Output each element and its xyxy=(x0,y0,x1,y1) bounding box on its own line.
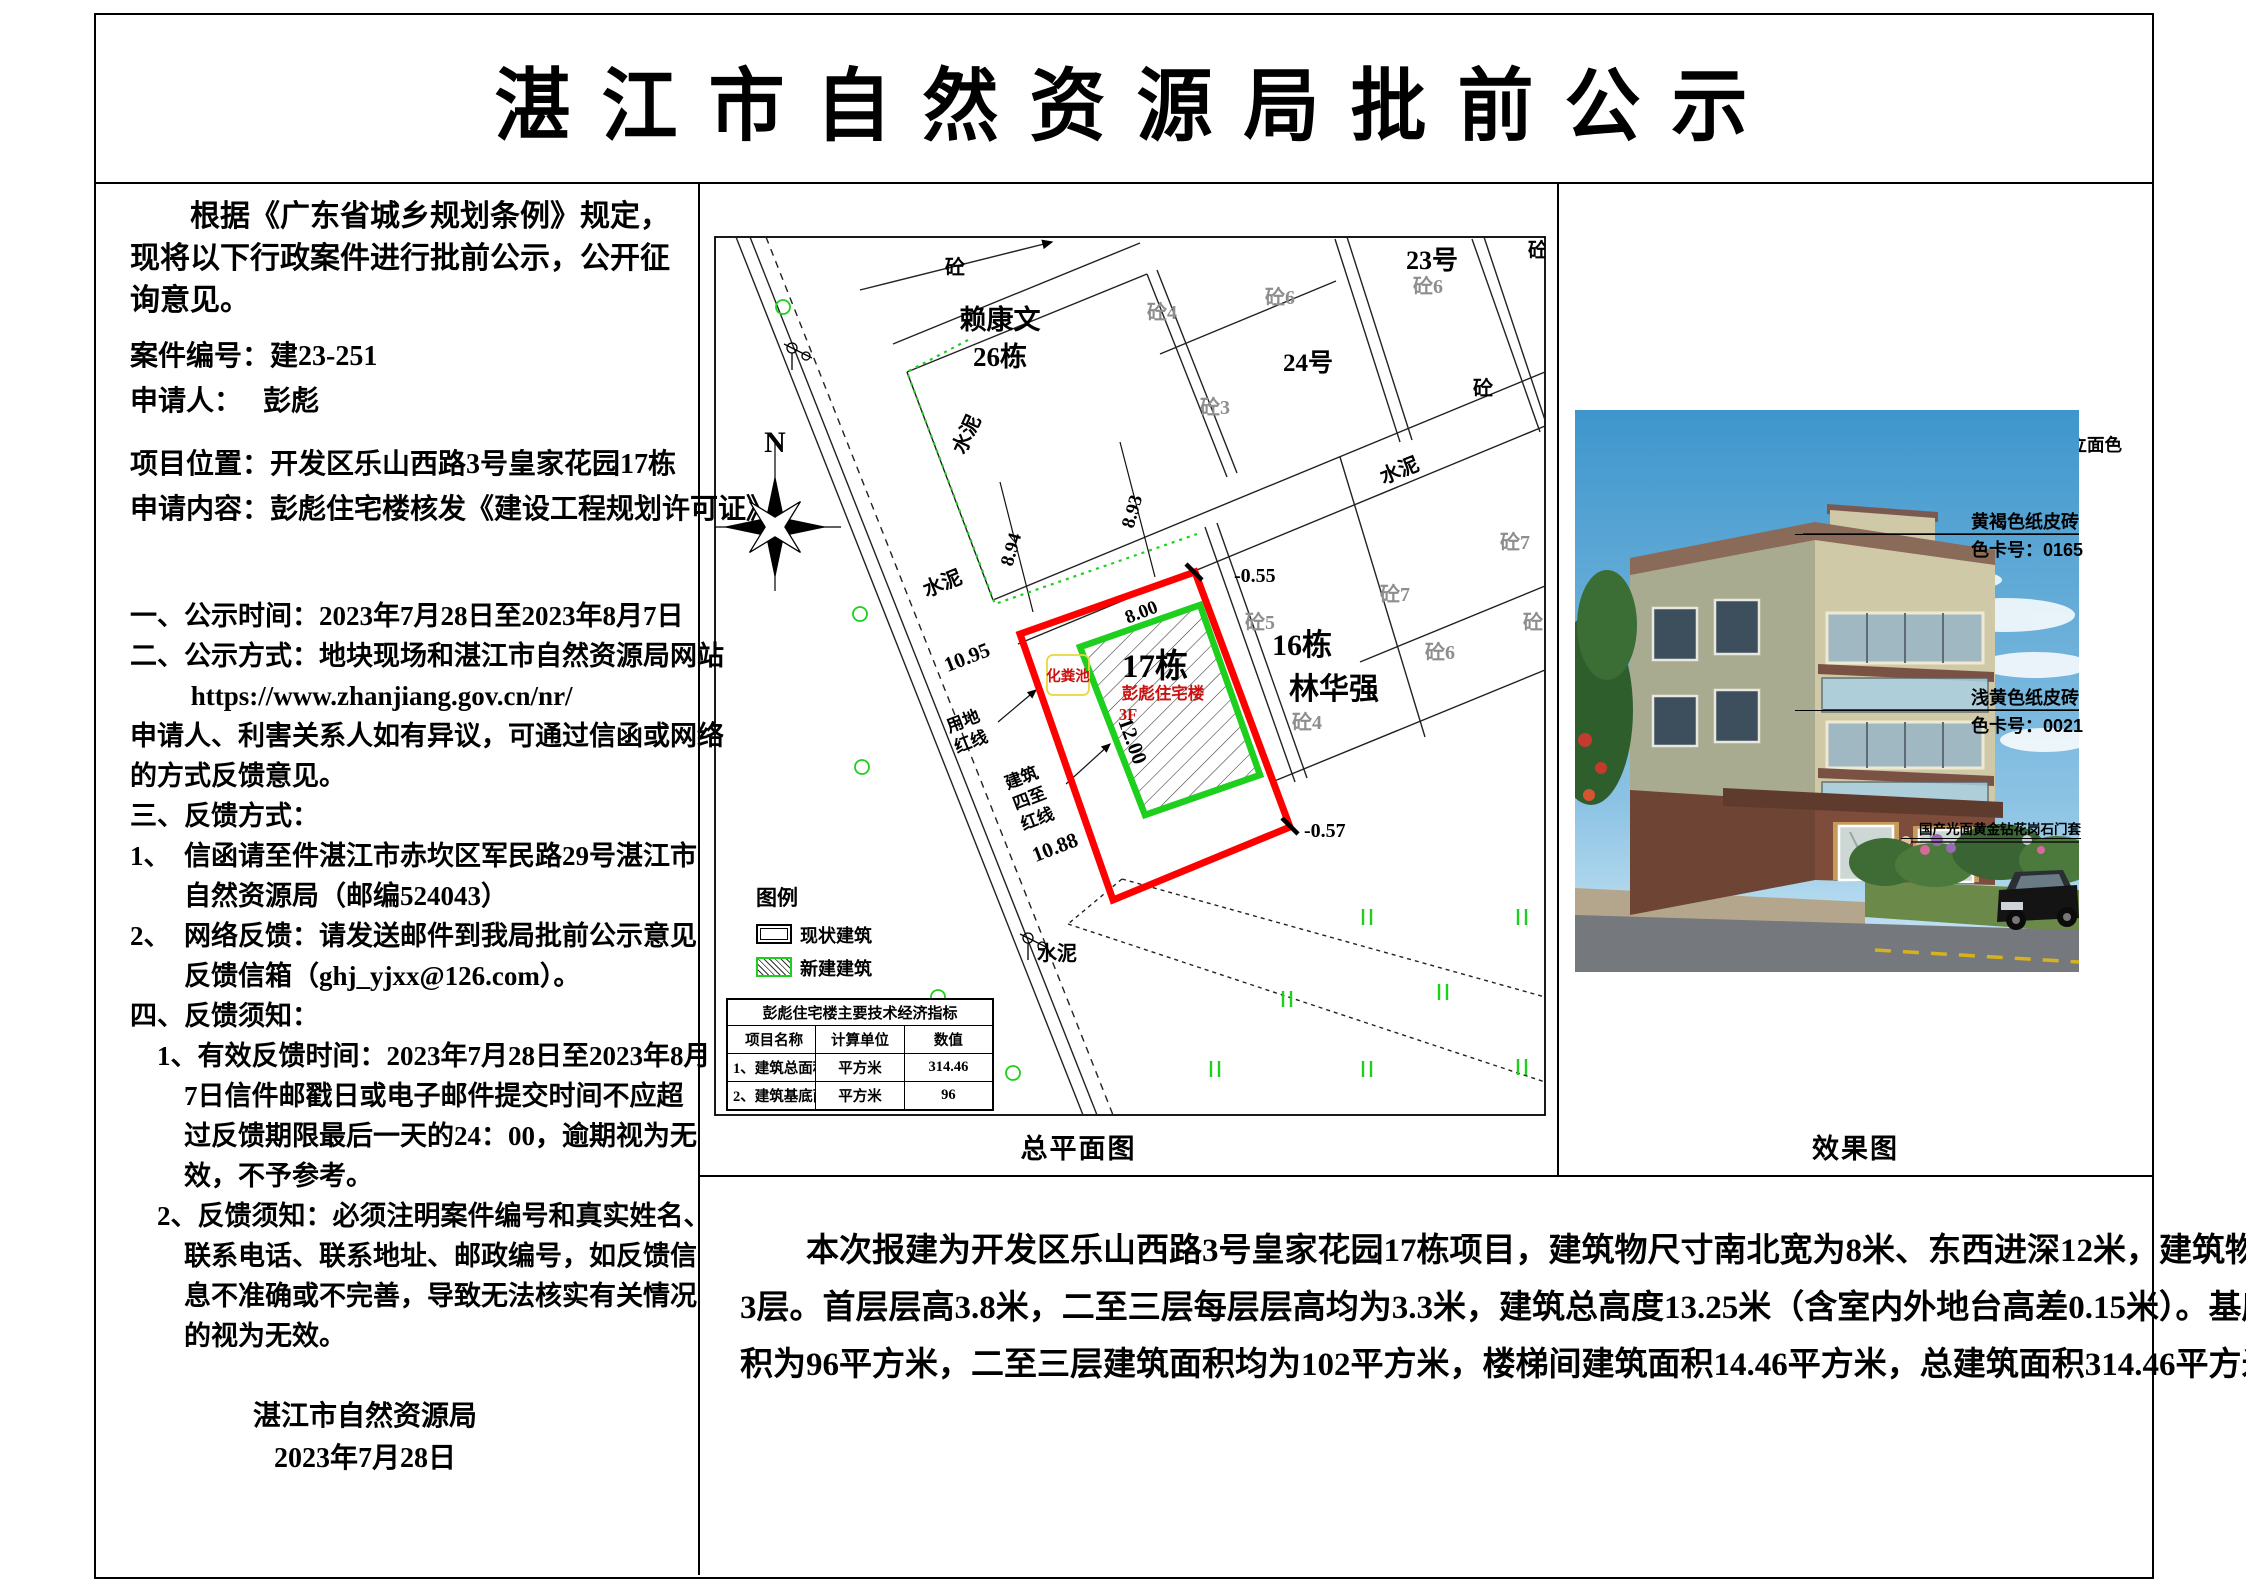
legend-existing-label: 现状建筑 xyxy=(800,922,872,948)
website-url: https://www.zhanjiang.gov.cn/nr/ xyxy=(130,676,698,716)
building-number-label: 16栋 xyxy=(1272,628,1332,662)
applicant: 申请人： 彭彪 xyxy=(130,379,698,424)
row-value: 96 xyxy=(904,1082,993,1111)
notice-line: 联系电话、联系地址、邮政编号，如反馈信 xyxy=(130,1236,698,1276)
notice-line: 7日信件邮戳日或电子邮件提交时间不应超 xyxy=(130,1076,698,1116)
site-plan-caption: 总平面图 xyxy=(600,1127,1557,1166)
svg-text:砼4: 砼4 xyxy=(1147,300,1177,324)
green-boundary-dashes xyxy=(907,340,1197,604)
owner-label: 林华强 xyxy=(1289,673,1379,706)
render-caption: 效果图 xyxy=(1559,1127,2152,1166)
septic-tank-label: 化粪池 xyxy=(1046,667,1090,685)
indicators-table: 彭彪住宅楼主要技术经济指标 项目名称 计算单位 数值 1、建筑总面积 平方米 3… xyxy=(726,998,994,1111)
house-number-label: 24号 xyxy=(1283,349,1333,377)
utility-pole-icon xyxy=(784,343,812,370)
notice-line: 2、反馈须知：必须注明案件编号和真实姓名、 xyxy=(130,1196,698,1236)
notice-line: 四、反馈须知： xyxy=(130,996,698,1036)
col-header: 计算单位 xyxy=(816,1026,905,1054)
page-title: 湛 江 市 自 然 资 源 局 批 前 公 示 xyxy=(495,41,1754,157)
new-building-outline xyxy=(1080,605,1260,815)
email-line: 反馈信箱（ghj_yjxx@126.com）。 xyxy=(130,956,698,996)
material-annotation-1: 黄褐色纸皮砖 xyxy=(1795,508,2079,535)
svg-text:砼7: 砼7 xyxy=(1380,582,1410,606)
material-annotation-2: 浅黄色纸皮砖 xyxy=(1795,684,2079,711)
render-panel: 采用《中国建筑色卡国家标准》（GB/T18922-2008）色卡编号立面色号： xyxy=(1559,182,2152,1177)
owner-label: 赖康文 xyxy=(960,304,1042,335)
legend-new-label: 新建建筑 xyxy=(800,955,872,981)
legend-new-swatch xyxy=(756,957,792,977)
color-card-1: 色卡号：0165 xyxy=(1971,536,2083,562)
intro-line: 根据《广东省城乡规划条例》规定， xyxy=(130,196,698,238)
dim-1088: 10.88 xyxy=(1029,828,1082,867)
issuing-authority: 湛江市自然资源局 xyxy=(130,1396,600,1438)
notice-line: 二、公示方式：地块现场和湛江市自然资源局网站 xyxy=(130,636,698,676)
intro-line: 询意见。 xyxy=(130,280,698,322)
notice-line: 一、公示时间：2023年7月28日至2023年8月7日 xyxy=(130,596,698,636)
title-block: 湛 江 市 自 然 资 源 局 批 前 公 示 xyxy=(96,15,2152,184)
notice-line: 1、有效反馈时间：2023年7月28日至2023年8月 xyxy=(130,1036,698,1076)
row-label: 1、建筑总面积 xyxy=(727,1054,816,1082)
project-house-label: 彭彪住宅楼 xyxy=(1122,683,1205,703)
notice-line: 三、反馈方式： xyxy=(130,796,698,836)
svg-text:砼3: 砼3 xyxy=(1200,395,1230,419)
dim-893: 8.93 xyxy=(1118,493,1147,531)
building-17-label: 17栋 xyxy=(1122,648,1188,685)
notice-text-column: 根据《广东省城乡规划条例》规定， 现将以下行政案件进行批前公示，公开征 询意见。… xyxy=(96,182,700,1575)
north-compass-icon xyxy=(713,439,841,591)
svg-text:砼6: 砼6 xyxy=(1265,285,1295,309)
road-surface-label: 水泥 xyxy=(948,411,986,457)
description-line: 3层。首层层高3.8米，二至三层每层层高均为3.3米，建筑总高度13.25米（含… xyxy=(740,1280,2114,1337)
notice-line: 自然资源局（邮编524043） xyxy=(130,876,698,916)
house-number-label: 23号 xyxy=(1406,246,1458,275)
elev-057: -0.57 xyxy=(1304,820,1346,842)
project-location: 项目位置：开发区乐山西路3号皇家花园17栋 xyxy=(130,442,698,487)
col-header: 数值 xyxy=(904,1026,993,1054)
legend-existing-swatch xyxy=(756,924,792,944)
elev-055: -0.55 xyxy=(1234,565,1276,587)
row-unit: 平方米 xyxy=(816,1054,905,1082)
notice-line: 1、 信函请至件湛江市赤坎区军民路29号湛江市 xyxy=(130,836,698,876)
grass-marks xyxy=(1211,909,1526,1077)
svg-text:砼5: 砼5 xyxy=(1245,610,1275,634)
description-line: 积为96平方米，二至三层建筑面积均为102平方米，楼梯间建筑面积14.46平方米… xyxy=(740,1337,2114,1394)
dim-1095: 10.95 xyxy=(941,638,994,677)
table-row: 1、建筑总面积 平方米 314.46 xyxy=(727,1054,993,1082)
issue-date: 2023年7月28日 xyxy=(130,1438,600,1480)
notice-page: 湛 江 市 自 然 资 源 局 批 前 公 示 根据《广东省城乡规划条例》规定，… xyxy=(94,13,2154,1579)
legend-title: 图例 xyxy=(756,882,798,912)
land-red-line-label: 用地 红线 xyxy=(944,706,991,757)
row-value: 314.46 xyxy=(904,1054,993,1082)
door-frame-annotation: 国产光面黄金钻花岗石门套 xyxy=(1901,818,2081,839)
application-content: 申请内容：彭彪住宅楼核发《建设工程规划许可证》 xyxy=(130,487,698,532)
description-line: 本次报建为开发区乐山西路3号皇家花园17栋项目，建筑物尺寸南北宽为8米、东西进深… xyxy=(740,1223,2114,1280)
north-letter: N xyxy=(764,426,786,459)
dim-894: 8.94 xyxy=(997,530,1026,568)
svg-text:砼6: 砼6 xyxy=(1413,274,1443,298)
project-description-panel: 本次报建为开发区乐山西路3号皇家花园17栋项目，建筑物尺寸南北宽为8米、东西进深… xyxy=(700,1177,2152,1577)
case-number: 案件编号：建23-251 xyxy=(130,334,698,379)
road-surface-label: 水泥 xyxy=(920,565,966,601)
row-label: 2、建筑基底面积 xyxy=(727,1082,816,1111)
structure-label: 砼 xyxy=(945,255,966,279)
notice-line: 的方式反馈意见。 xyxy=(130,756,698,796)
row-unit: 平方米 xyxy=(816,1082,905,1111)
road-surface-label: 水泥 xyxy=(1377,452,1423,488)
road-surface-label: 水泥 xyxy=(1037,942,1077,965)
col-header: 项目名称 xyxy=(727,1026,816,1054)
color-card-2: 色卡号：0021 xyxy=(1971,712,2083,738)
building-red-line-label: 建筑 四至 红线 xyxy=(1002,762,1057,834)
svg-text:砼4: 砼4 xyxy=(1292,710,1322,734)
svg-text:砼6: 砼6 xyxy=(1425,640,1455,664)
notice-line: 申请人、利害关系人如有异议，可通过信函或网络 xyxy=(130,716,698,756)
site-plan-panel: 水泥 水泥 水泥 水泥 砼 砼 砼 赖康文 26栋 24号 23号 16栋 林华… xyxy=(700,182,1559,1177)
table-title: 彭彪住宅楼主要技术经济指标 xyxy=(727,999,993,1026)
table-header-row: 项目名称 计算单位 数值 xyxy=(727,1026,993,1054)
table-row: 2、建筑基底面积 平方米 96 xyxy=(727,1082,993,1111)
svg-text:砼7: 砼7 xyxy=(1500,530,1530,554)
structure-label: 砼 xyxy=(1473,376,1494,400)
notice-line: 的视为无效。 xyxy=(130,1316,698,1356)
notice-line: 息不准确或不完善，导致无法核实有关情况 xyxy=(130,1276,698,1316)
svg-text:砼: 砼 xyxy=(1523,610,1544,634)
building-number-label: 26栋 xyxy=(973,341,1027,372)
intro-line: 现将以下行政案件进行批前公示，公开征 xyxy=(130,238,698,280)
notice-line: 2、 网络反馈：请发送邮件到我局批前公示意见 xyxy=(130,916,698,956)
